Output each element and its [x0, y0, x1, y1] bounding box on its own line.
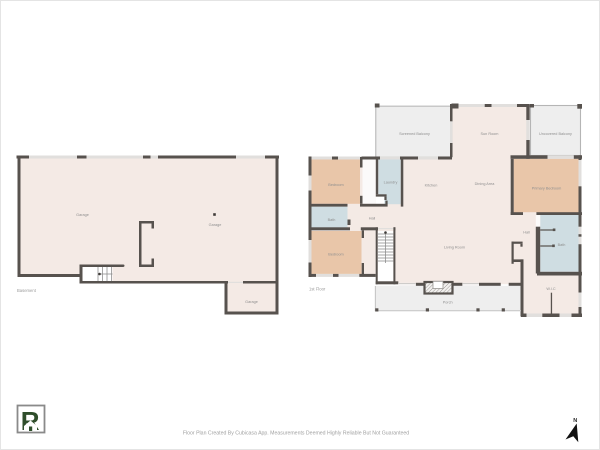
- svg-text:Dining Area: Dining Area: [475, 182, 496, 186]
- svg-text:Basement: Basement: [17, 288, 37, 293]
- svg-text:Sun Room: Sun Room: [481, 132, 499, 136]
- svg-text:Kitchen: Kitchen: [425, 184, 438, 188]
- svg-text:Bedroom: Bedroom: [328, 252, 343, 256]
- svg-text:Garage: Garage: [76, 213, 89, 217]
- svg-text:Screened Balcony: Screened Balcony: [399, 132, 430, 136]
- svg-text:Hall: Hall: [369, 216, 376, 220]
- svg-text:Bedroom: Bedroom: [328, 183, 343, 187]
- svg-text:Living Room: Living Room: [444, 245, 465, 249]
- svg-text:Hall: Hall: [523, 230, 530, 234]
- svg-text:Garage: Garage: [245, 300, 258, 304]
- svg-text:Garage: Garage: [209, 223, 222, 227]
- svg-text:Porch: Porch: [443, 300, 453, 304]
- svg-text:1st Floor: 1st Floor: [309, 287, 326, 292]
- svg-text:Bath: Bath: [328, 218, 336, 222]
- svg-text:Laundry: Laundry: [384, 180, 398, 184]
- svg-text:Uncovered Balcony: Uncovered Balcony: [539, 132, 572, 136]
- svg-text:Bath: Bath: [558, 243, 566, 247]
- svg-text:N: N: [573, 418, 577, 424]
- svg-text:W.I.C: W.I.C: [546, 287, 556, 291]
- svg-text:Primary Bedroom: Primary Bedroom: [532, 187, 562, 191]
- svg-text:Floor Plan Created By Cubicasa: Floor Plan Created By Cubicasa App. Meas…: [183, 431, 409, 437]
